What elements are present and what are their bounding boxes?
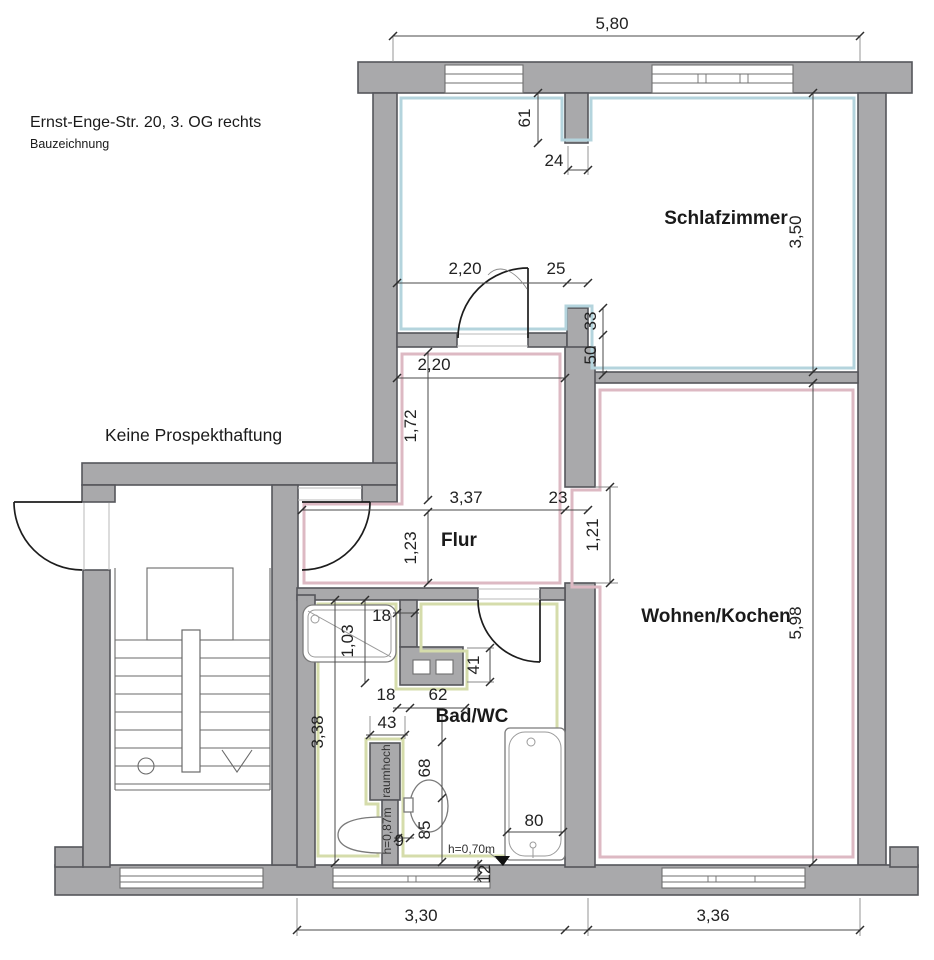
duct-opening-2 xyxy=(436,660,453,674)
wall-bottom-corner-right xyxy=(890,847,918,867)
wall-entrance-pier-right xyxy=(362,485,397,502)
bathtub xyxy=(505,728,565,860)
label-full-height: raumhoch xyxy=(379,744,393,797)
stair-stringer xyxy=(182,630,200,772)
label-half-wall-height: h=0,87m xyxy=(380,807,394,854)
wall-bedroom-living-divider xyxy=(588,372,858,383)
dim-duct-left: 18 xyxy=(377,685,396,704)
door-apartment-entrance xyxy=(302,502,370,570)
wall-stairwell-top xyxy=(82,463,397,485)
dim-wall-thickness: 23 xyxy=(549,488,568,507)
dim-tub-width: 80 xyxy=(525,811,544,830)
dim-hall-upper-depth: 1,72 xyxy=(401,409,420,442)
room-label-bedroom: Schlafzimmer xyxy=(664,208,788,229)
dim-duct-depth: 41 xyxy=(464,656,483,675)
dim-bath-bottom-width: 3,30 xyxy=(404,906,437,925)
dim-living-opening: 1,21 xyxy=(583,518,602,551)
plan-title: Ernst-Enge-Str. 20, 3. OG rechts xyxy=(30,114,261,131)
wall-stairwell-top-pier-left xyxy=(82,485,115,502)
room-label-living: Wohnen/Kochen xyxy=(641,606,791,627)
dim-living-bottom-width: 3,36 xyxy=(696,906,729,925)
wall-bedroom-left xyxy=(373,93,397,502)
stairwell xyxy=(115,568,270,790)
stair-landing xyxy=(147,568,233,640)
dim-hall-lower-depth: 1,23 xyxy=(401,531,420,564)
dim-living-depth: 5,98 xyxy=(786,606,805,639)
window-stairwell xyxy=(120,868,263,888)
bedroom-dim-leader xyxy=(488,269,527,289)
dim-step-a: 33 xyxy=(581,312,600,331)
dim-wc-width: 68 xyxy=(415,759,434,778)
door-building-exterior xyxy=(14,502,82,570)
dim-bath-pier-width: 43 xyxy=(378,713,397,732)
dim-step-b: 50 xyxy=(581,346,600,365)
dim-bedroom-door-wall: 2,20 xyxy=(448,259,481,278)
wall-window-pier xyxy=(565,93,588,143)
dim-sill: 12 xyxy=(475,865,494,884)
dim-duct-width: 62 xyxy=(429,685,448,704)
floor-plan-drawing: Ernst-Enge-Str. 20, 3. OG rechts Bauzeic… xyxy=(0,0,934,960)
disclaimer-text: Keine Prospekthaftung xyxy=(105,425,282,445)
dim-bedroom-depth: 3,50 xyxy=(786,215,805,248)
window-bedroom-right xyxy=(652,65,793,93)
wall-living-west-lower xyxy=(565,583,595,867)
floor-plan: Ernst-Enge-Str. 20, 3. OG rechts Bauzeic… xyxy=(0,0,934,960)
wall-right xyxy=(858,93,886,865)
dim-building-top: 5,80 xyxy=(595,14,628,33)
dim-door-jamb: 25 xyxy=(547,259,566,278)
dim-shower-edge: 18 xyxy=(372,606,391,625)
room-label-hallway: Flur xyxy=(441,530,477,551)
duct-strip xyxy=(400,600,417,647)
dim-hall-width: 3,37 xyxy=(449,488,482,507)
wall-hall-bedroom-right xyxy=(528,333,567,347)
wall-stairwell-right xyxy=(272,485,298,865)
dim-gap: 9 xyxy=(395,831,404,850)
door-bathroom xyxy=(478,600,540,662)
window-bath xyxy=(333,868,490,888)
wall-bath-north-block xyxy=(540,588,565,600)
stair-direction-arrow xyxy=(222,750,252,772)
window-living xyxy=(662,868,805,888)
plan-subtitle: Bauzeichnung xyxy=(30,137,109,151)
dim-wc-depth: 85 xyxy=(415,821,434,840)
dim-pier-width: 24 xyxy=(545,151,564,170)
duct-opening-1 xyxy=(413,660,430,674)
washbasin xyxy=(338,817,382,853)
wall-hall-bedroom-left xyxy=(397,333,457,347)
dim-hall-top-width: 2,20 xyxy=(417,355,450,374)
wall-stairwell-left xyxy=(83,570,110,867)
dim-bath-depth: 3,38 xyxy=(308,715,327,748)
dim-pier-depth: 61 xyxy=(515,109,534,128)
label-tub-height: h=0,70m xyxy=(448,842,495,856)
dim-shower-length: 1,03 xyxy=(338,624,357,657)
wall-bath-north xyxy=(297,588,478,600)
wall-bottom-corner-left xyxy=(55,847,83,867)
window-bedroom-left xyxy=(445,65,523,93)
room-label-bathroom: Bad/WC xyxy=(436,706,509,727)
wall-top xyxy=(358,62,912,93)
